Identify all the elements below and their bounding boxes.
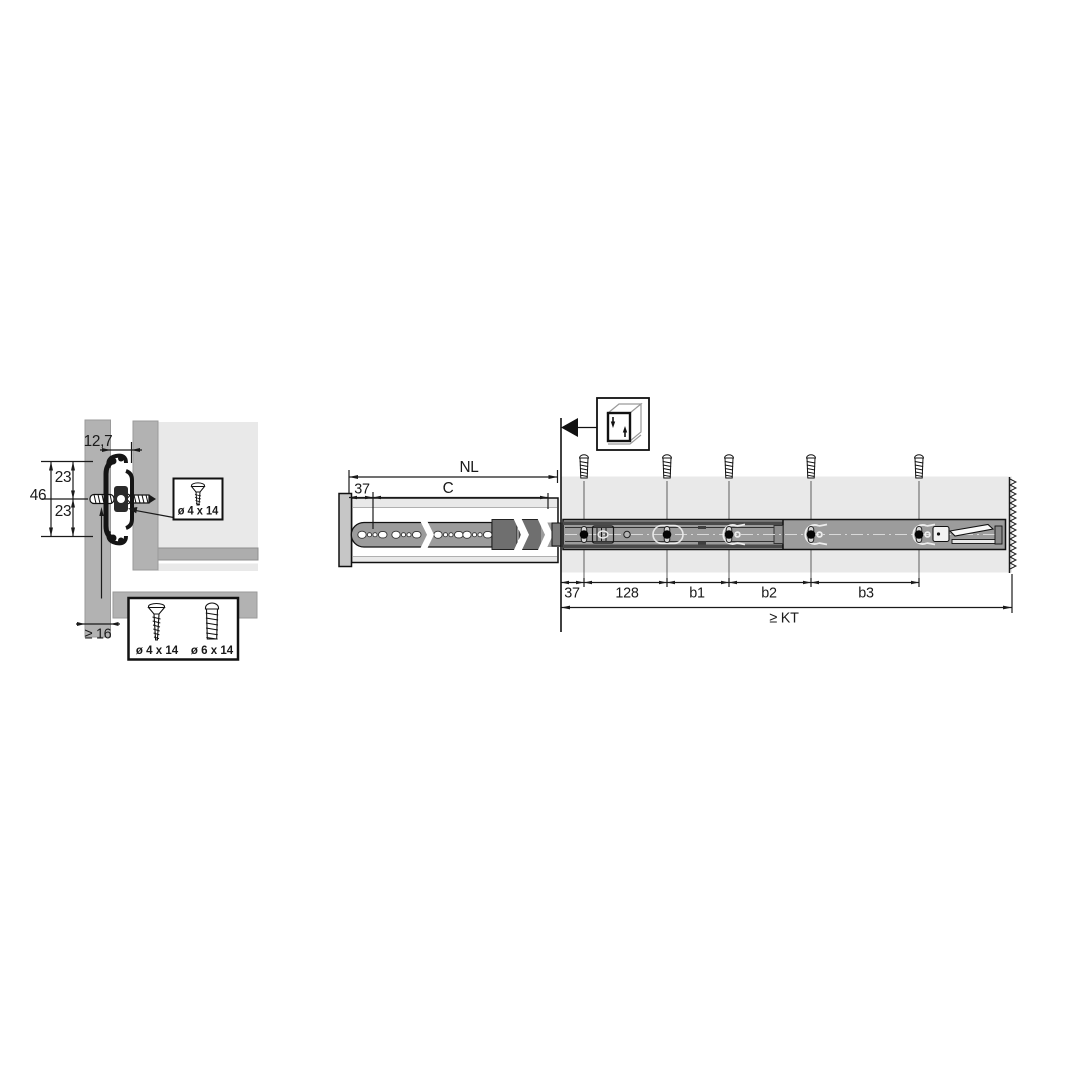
- drawer-bottom-panel: [151, 548, 258, 560]
- cabinet-rail: [552, 520, 1006, 550]
- dim-label-b3: b3: [858, 585, 873, 600]
- side-view: [339, 398, 1016, 632]
- screw-icon: [580, 455, 589, 478]
- dim-label-37: 37: [564, 585, 579, 600]
- dim-label-37-front: 37: [354, 482, 369, 497]
- front-end-cap: [339, 494, 352, 567]
- telescopic-segment: [492, 520, 517, 550]
- cabinet-icon: [597, 398, 649, 450]
- dim-label-offset: 12,7: [83, 434, 112, 450]
- screw-icon: [663, 455, 672, 478]
- dim-label-b1: b1: [689, 585, 704, 600]
- screw-option-label-1: ø 4 x 14: [135, 644, 177, 656]
- dim-label-height-upper: 23: [55, 470, 72, 486]
- cross-section-view: [41, 420, 258, 660]
- dim-label-128: 128: [615, 585, 638, 600]
- dim-label-nl: NL: [459, 460, 478, 476]
- diagram-page: 12,7 46 23 23 ≥ 16 ø 4 x 14 ø 4 x 14 ø 6…: [0, 0, 1080, 1080]
- screw-icon: [807, 455, 816, 478]
- dim-label-c: C: [443, 481, 454, 497]
- screw-icon: [725, 455, 734, 478]
- dim-label-height-lower: 23: [55, 504, 72, 520]
- euro-screw-icon: [206, 603, 219, 639]
- mounting-screws: [580, 455, 924, 478]
- front-reference-arrow-icon: [561, 418, 597, 437]
- screw-icon: [915, 455, 924, 478]
- screw-option-label-2: ø 6 x 14: [190, 644, 232, 656]
- dim-label-height-total: 46: [30, 488, 47, 504]
- dim-label-min-thickness: ≥ 16: [84, 626, 111, 641]
- dim-label-b2: b2: [761, 585, 776, 600]
- dim-label-kt: ≥ KT: [769, 610, 798, 625]
- screw-callout-label: ø 4 x 14: [178, 506, 219, 518]
- diagram-canvas: [0, 0, 1080, 1080]
- shelf-gap: [151, 561, 258, 564]
